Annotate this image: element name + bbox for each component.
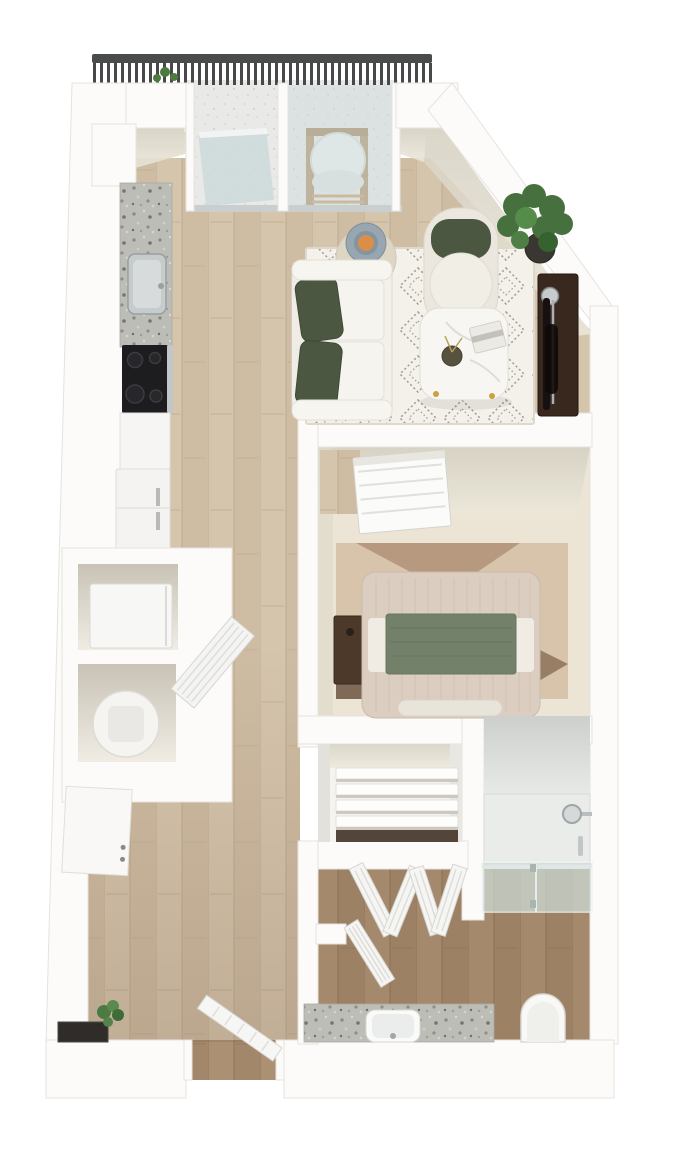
closet-south-wall <box>318 841 468 869</box>
walk-in-closet <box>318 744 462 842</box>
kitchen-corner-column <box>92 124 136 186</box>
door-window-mullion <box>278 83 288 211</box>
bottom-wall-left <box>46 1040 186 1098</box>
coffee-table <box>420 308 512 410</box>
media-console <box>538 274 578 416</box>
kitchen-sink <box>128 254 166 314</box>
nightstand <box>334 616 366 684</box>
closet-shelves <box>336 768 458 842</box>
balcony-railing-bar <box>92 54 432 63</box>
sliding-glass-door <box>192 85 278 209</box>
oven-handle <box>167 345 173 413</box>
water-heater <box>93 691 159 757</box>
dresser <box>353 450 451 534</box>
shower <box>482 716 592 912</box>
sage-throw-blanket <box>386 614 516 674</box>
shower-glass-door <box>482 862 592 912</box>
door-frame-left <box>186 83 194 211</box>
floor-plan-rendering <box>0 0 676 1154</box>
shower-wall <box>484 716 590 798</box>
washer <box>90 584 172 648</box>
bathroom-door-jamb <box>316 924 346 944</box>
entry-jamb-left <box>184 1040 192 1080</box>
bed <box>362 572 540 718</box>
open-glass-panel <box>198 128 274 206</box>
bedroom-west-wall <box>298 413 318 747</box>
linen-cabinet <box>62 786 132 875</box>
bottom-wall-right <box>284 1040 614 1098</box>
bed-pillow <box>398 700 502 716</box>
vanity <box>304 1004 494 1042</box>
closet-shower-wall <box>462 716 484 920</box>
right-wall <box>590 306 618 1044</box>
stove <box>122 345 173 413</box>
kitchen <box>116 183 173 551</box>
base-cabinet <box>120 413 170 469</box>
sofa <box>292 260 392 420</box>
refrigerator <box>116 469 170 551</box>
door-mat-niche <box>58 1022 108 1042</box>
